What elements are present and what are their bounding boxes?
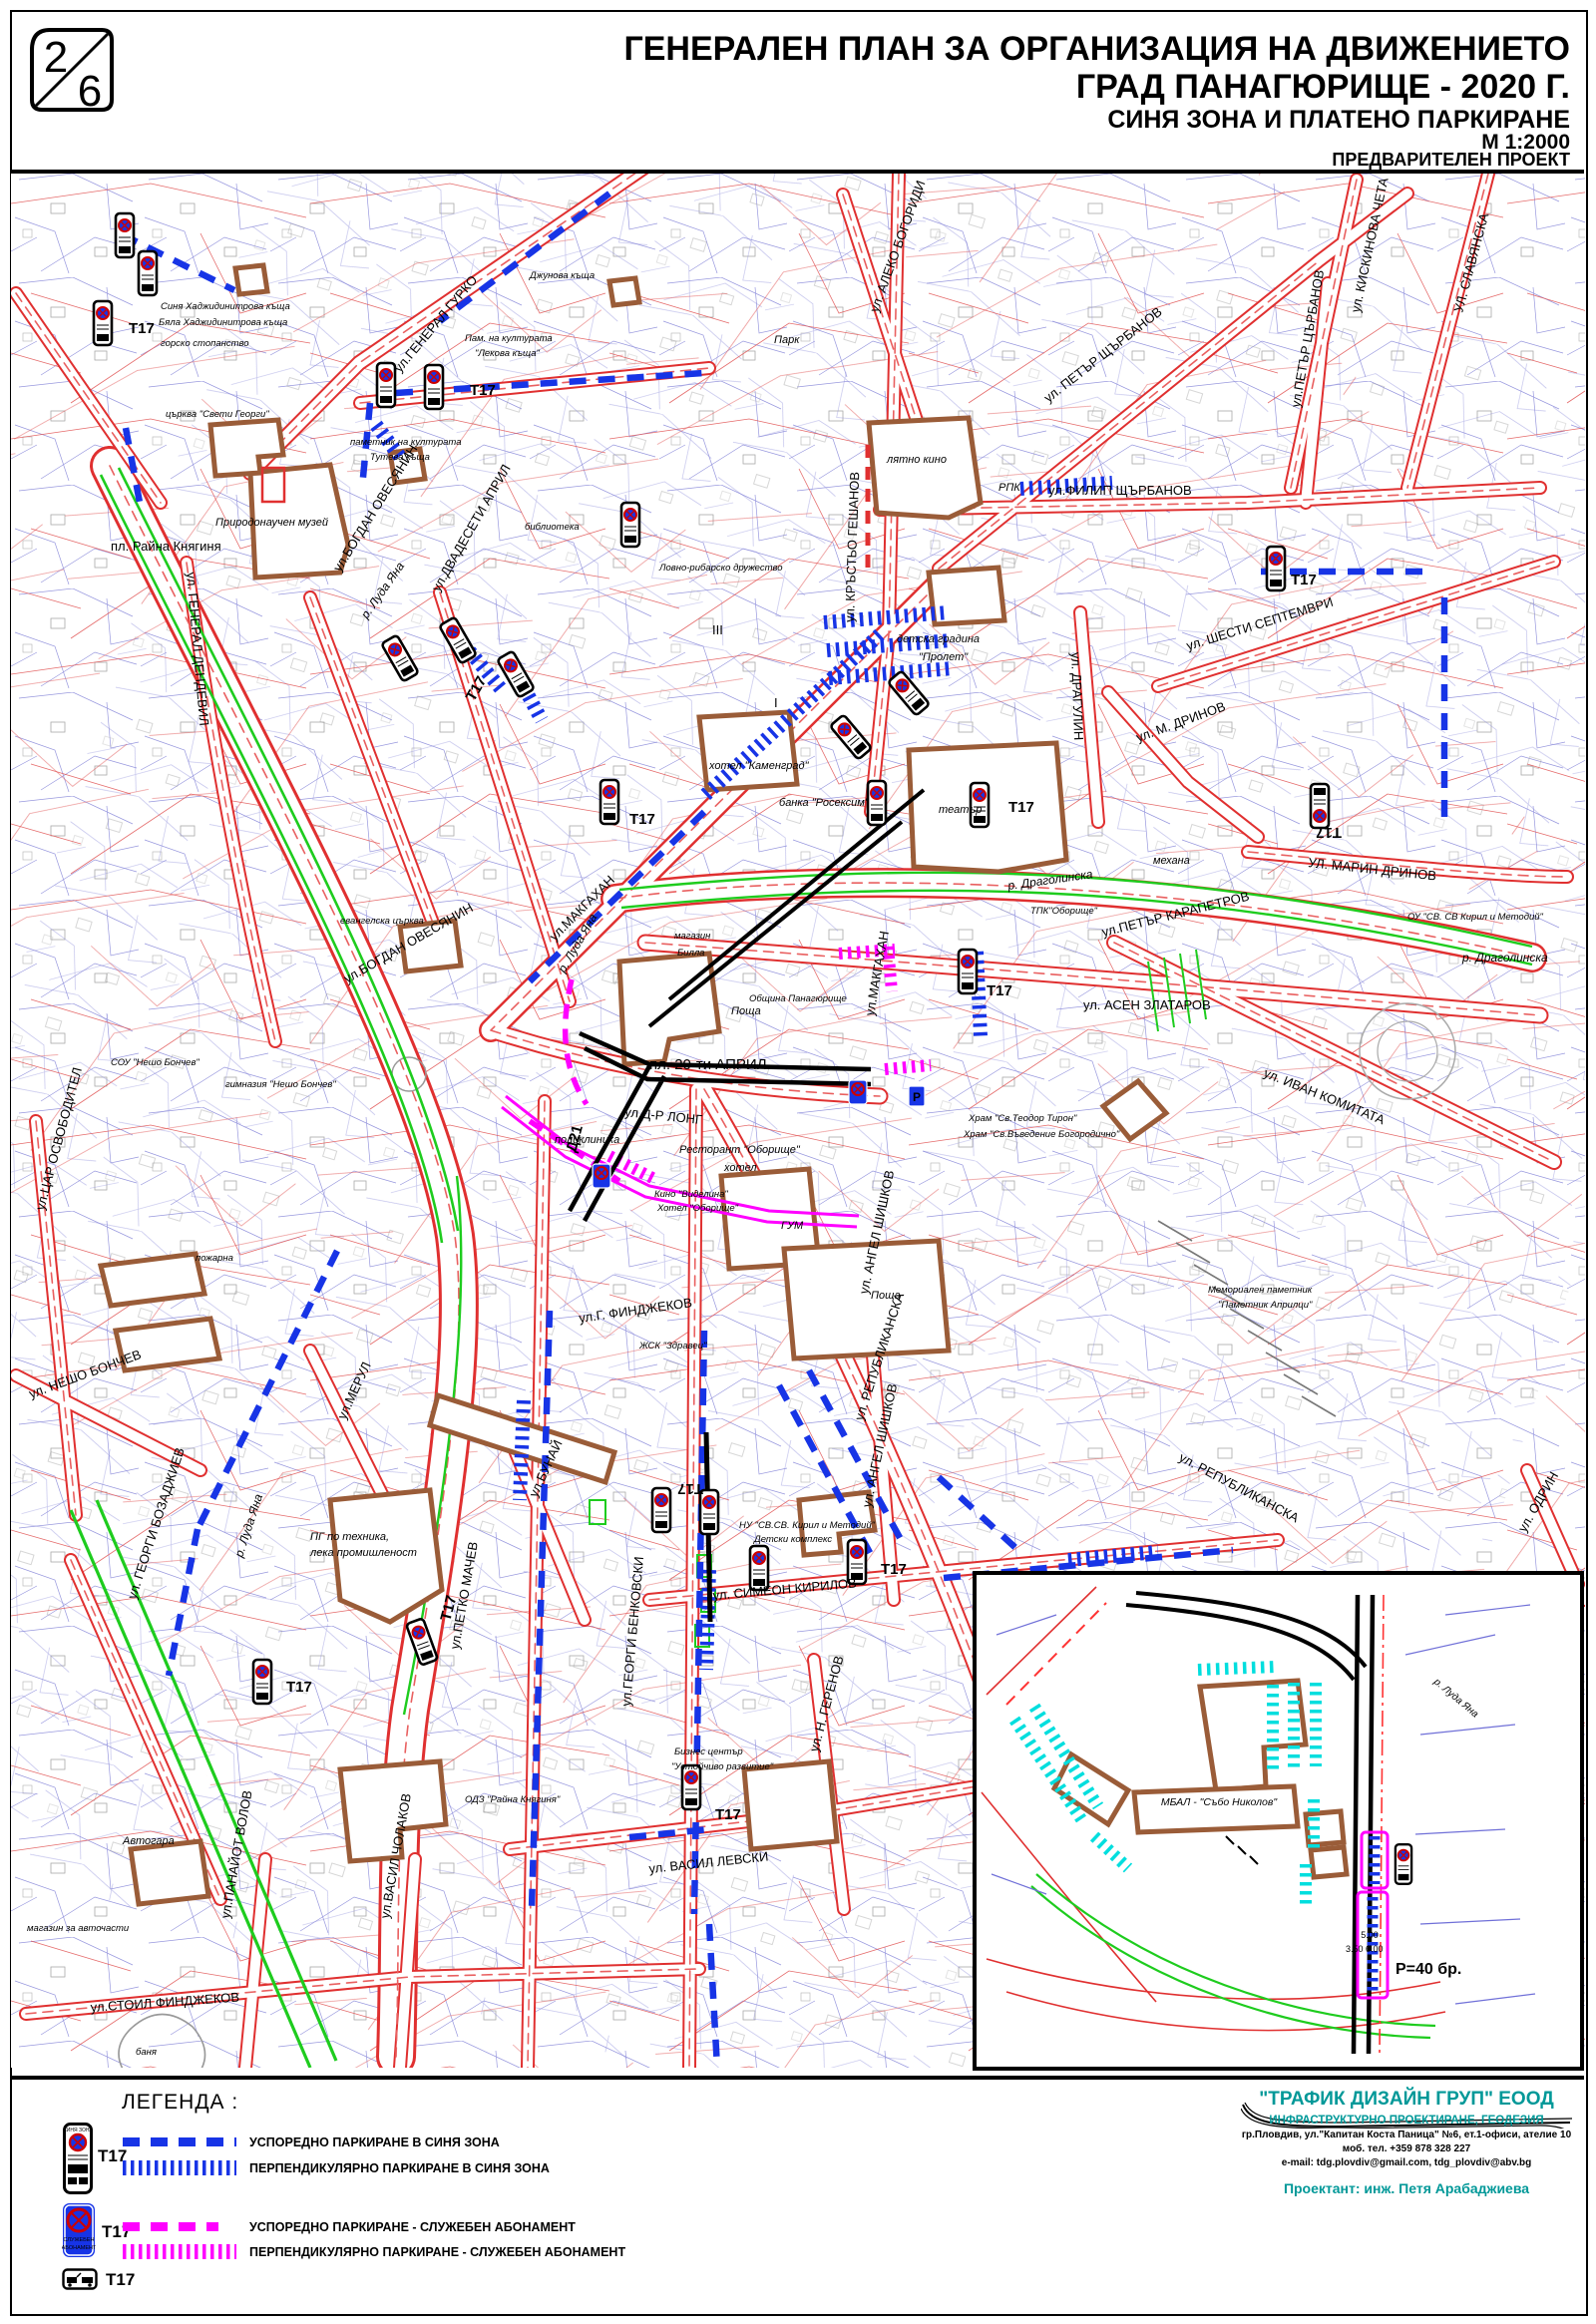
sheet-number-box: 2 6 xyxy=(28,26,116,114)
t17-sign-icon xyxy=(377,363,395,407)
street-label: ул. АСЕН ЗЛАТАРОВ xyxy=(1083,997,1211,1012)
poi-label: СОУ "Нешо Бончев" xyxy=(111,1057,199,1068)
poi-label: Кино "Виделина" xyxy=(654,1189,728,1200)
poi-label: банка "Росексим" xyxy=(779,797,870,809)
poi-label: Поща xyxy=(731,1005,761,1017)
block-number: III xyxy=(712,622,723,637)
poi-label: ОДЗ "Райна Княгиня" xyxy=(465,1794,561,1805)
t17-sign-icon xyxy=(139,251,157,295)
poi-label: Храм "Св.Теодор Тирон" xyxy=(968,1113,1077,1124)
street-label: пл. Райна Княгиня xyxy=(111,539,221,554)
t17-sign-icon xyxy=(868,781,886,825)
service-sign-icon xyxy=(593,1164,610,1188)
poi-label: лека промишленост xyxy=(309,1547,417,1559)
poi-label: магазин xyxy=(674,931,711,942)
poi-label: поликлиника xyxy=(555,1134,619,1146)
legend-swatch-perpendicular-blue xyxy=(123,2160,236,2175)
t17-sign-icon xyxy=(425,365,443,409)
svg-text:Т17: Т17 xyxy=(470,382,496,399)
t17-sign-icon xyxy=(253,1660,271,1704)
poi-label: ГУМ xyxy=(781,1220,804,1232)
poi-label: Бяла Хаджидинитрова къща xyxy=(159,317,287,328)
poi-label: магазин за авточасти xyxy=(27,1923,130,1934)
svg-text:Т17: Т17 xyxy=(677,1480,703,1497)
dimension-label: 5.00 xyxy=(1361,1930,1379,1940)
poi-label: РПК xyxy=(998,482,1020,494)
poi-label: "Пролет" xyxy=(919,651,969,663)
service-sign-icon xyxy=(849,1080,867,1104)
poi-label: Ресторант "Оборище" xyxy=(679,1144,801,1156)
t17-sign-icon xyxy=(959,950,977,993)
svg-text:Т17: Т17 xyxy=(715,1806,741,1823)
poi-label: Природонаучен музей xyxy=(215,517,328,529)
t17-sign-icon xyxy=(116,213,134,257)
legend-label: ПЕРПЕНДИКУЛЯРНО ПАРКИРАНЕ В СИНЯ ЗОНА xyxy=(249,2161,550,2175)
svg-text:Т17: Т17 xyxy=(1316,824,1342,841)
legend-label: ПЕРПЕНДИКУЛЯРНО ПАРКИРАНЕ - СЛУЖЕБЕН АБО… xyxy=(249,2245,625,2259)
company-designer: Проектант: инж. Петя Арабаджиева xyxy=(1237,2180,1576,2196)
square-label: пл. 20-ти АПРИЛ xyxy=(649,1056,767,1073)
plan-title-line2: ГРАД ПАНАГЮРИЩЕ - 2020 Г. xyxy=(1076,68,1570,107)
poi-label: Ловно-рибарско дружество xyxy=(658,563,783,574)
svg-text:Т17: Т17 xyxy=(286,1679,312,1696)
dimension-label: 3.50 6.00 xyxy=(1346,1944,1384,1954)
tow-away-sign xyxy=(62,2268,98,2290)
poi-label: евангелска църква xyxy=(340,916,424,927)
legend-label: УСПОРЕДНО ПАРКИРАНЕ - СЛУЖЕБЕН АБОНАМЕНТ xyxy=(249,2220,576,2234)
poi-label: ПГ по техника, xyxy=(310,1531,389,1543)
poi-label: хотел xyxy=(723,1162,757,1174)
river-label: р. Драголинска xyxy=(1461,951,1548,965)
svg-text:Т17: Т17 xyxy=(1008,799,1034,816)
parking-sign-icon xyxy=(909,1086,925,1106)
legend-swatch-perpendicular-magenta xyxy=(123,2244,236,2259)
poi-label: ОУ "СВ. СВ Кирил и Методий" xyxy=(1407,912,1544,923)
t17-sign-icon xyxy=(1267,547,1285,590)
poi-label: ЖСК "Здравец" xyxy=(638,1341,707,1352)
poi-label: Синя Хаджидинитрова къща xyxy=(161,301,290,312)
street-label: ул. ДРАГУЛИН xyxy=(1068,652,1086,741)
poi-label: баня xyxy=(136,2047,157,2058)
svg-text:Т17: Т17 xyxy=(629,811,655,828)
poi-label: Детски комплекс xyxy=(753,1534,832,1545)
street-label: ул.ФИЛИП ЩЪРБАНОВ xyxy=(1048,483,1192,498)
t17-code-label: Т17 xyxy=(106,2270,135,2290)
poi-label: Мемориален паметник xyxy=(1208,1285,1313,1296)
sign-text: СЛУЖЕБЕН xyxy=(64,2237,95,2243)
poi-label: горско стопанство xyxy=(161,338,249,349)
inset-svg: МБАЛ - "Събо Николов" р. Луда Яна 5.00 3… xyxy=(977,1575,1580,2067)
poi-label: ТПК"Оборище" xyxy=(1030,906,1098,917)
poi-label: Храм "Св.Въведение Богородично" xyxy=(963,1129,1120,1140)
t17-sign-icon xyxy=(94,301,112,345)
poi-label: Хотел "Оборище" xyxy=(656,1203,739,1214)
t17-service-sign: СЛУЖЕБЕН АБОНАМЕНТ xyxy=(62,2202,96,2258)
poi-label: механа xyxy=(1153,855,1190,867)
poi-label: Автогара xyxy=(122,1835,175,1847)
capacity-label: Р=40 бр. xyxy=(1396,1961,1461,1978)
poi-label: лятно кино xyxy=(886,454,947,466)
poi-label: библиотека xyxy=(525,522,580,533)
poi-label: Парк xyxy=(774,334,800,346)
company-field: ИНФРАСТРУКТУРНО ПРОЕКТИРАНЕ, ГЕОДЕЗИЯ xyxy=(1237,2115,1576,2127)
legend-heading: ЛЕГЕНДА : xyxy=(122,2091,238,2115)
poi-label: Община Панагюрище xyxy=(749,993,847,1004)
sheet-number-current: 2 xyxy=(44,33,68,82)
svg-text:Т17: Т17 xyxy=(987,982,1012,999)
poi-label: театър xyxy=(939,804,982,816)
sign-header: СИНЯ ЗОНА xyxy=(63,2128,93,2133)
legend-label: УСПОРЕДНО ПАРКИРАНЕ В СИНЯ ЗОНА xyxy=(249,2135,500,2149)
poi-label: "Устойчиво развитие" xyxy=(671,1761,774,1772)
poi-label: хотел "Каменград" xyxy=(708,760,810,772)
poi-label: Джунова къща xyxy=(529,270,595,281)
poi-label: Пам. на културата xyxy=(465,333,553,344)
company-phone: моб. тел. +359 878 328 227 xyxy=(1237,2143,1576,2154)
svg-text:Т17: Т17 xyxy=(881,1561,907,1578)
company-name: "ТРАФИК ДИЗАЙН ГРУП" ЕООД xyxy=(1237,2089,1576,2111)
t17-sign-icon xyxy=(621,503,639,547)
legend-swatch-parallel-magenta xyxy=(123,2222,218,2231)
legend-swatch-parallel-blue xyxy=(123,2137,236,2146)
company-block: "ТРАФИК ДИЗАЙН ГРУП" ЕООД ИНФРАСТРУКТУРН… xyxy=(1237,2089,1576,2196)
hospital-inset-map: МБАЛ - "Събо Николов" р. Луда Яна 5.00 3… xyxy=(973,1571,1584,2071)
poi-label: църква "Свети Георги" xyxy=(166,409,269,420)
company-address: гр.Пловдив, ул."Капитан Коста Паница" №6… xyxy=(1237,2130,1576,2140)
t17-sign-icon xyxy=(1311,784,1329,828)
block-number: I xyxy=(774,695,778,710)
svg-text:Т17: Т17 xyxy=(1291,572,1317,588)
hospital-label: МБАЛ - "Събо Николов" xyxy=(1161,1796,1278,1808)
poi-label: пожарна xyxy=(196,1253,233,1264)
poi-label: Билла xyxy=(677,948,704,959)
t17-sign-icon xyxy=(1396,1844,1411,1884)
poi-label: "Лекова къща" xyxy=(475,348,540,359)
sheet-number-total: 6 xyxy=(78,67,102,114)
poi-label: гимназия "Нешо Бончев" xyxy=(225,1079,336,1090)
poi-label: "Паметник Априлци" xyxy=(1218,1300,1313,1311)
company-email: e-mail: tdg.plovdiv@gmail.com, tdg_plovd… xyxy=(1237,2157,1576,2168)
plan-stage: ПРЕДВАРИТЕЛЕН ПРОЕКТ xyxy=(1332,150,1570,171)
t17-sign-icon xyxy=(600,780,618,824)
poi-label: НУ "СВ.СВ. Кирил и Методий" xyxy=(739,1520,876,1531)
poi-label: Бизнес център xyxy=(674,1746,743,1757)
svg-text:Т17: Т17 xyxy=(129,320,155,337)
plan-title-line1: ГЕНЕРАЛЕН ПЛАН ЗА ОРГАНИЗАЦИЯ НА ДВИЖЕНИ… xyxy=(623,30,1570,69)
t17-sign-icon xyxy=(652,1488,670,1532)
poi-label: детска градина xyxy=(897,633,980,645)
t17-blue-zone-sign: СИНЯ ЗОНА xyxy=(63,2123,93,2194)
sign-text: АБОНАМЕНТ xyxy=(62,2245,96,2251)
